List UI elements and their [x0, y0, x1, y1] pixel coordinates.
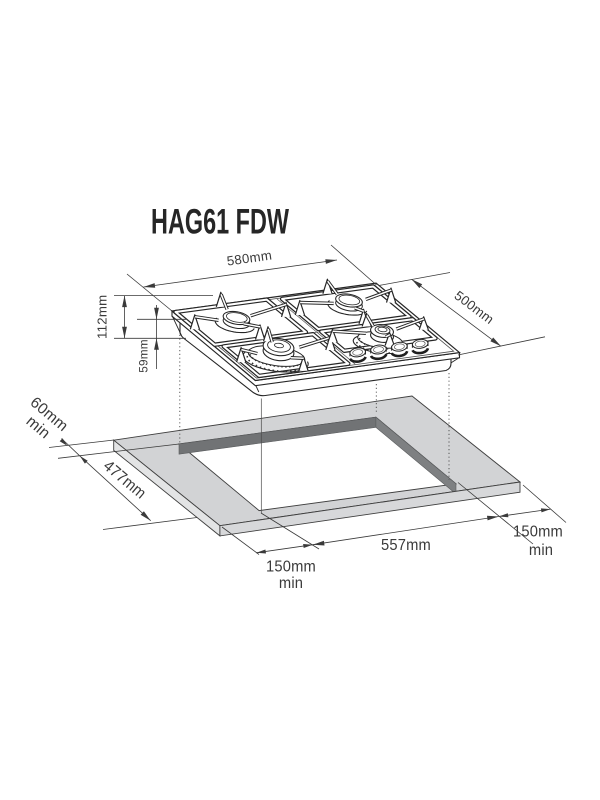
svg-text:112mm: 112mm — [95, 295, 110, 340]
svg-text:min: min — [529, 541, 553, 559]
svg-text:150mm: 150mm — [266, 558, 316, 576]
svg-text:150mm: 150mm — [513, 523, 563, 541]
svg-text:min: min — [279, 574, 303, 592]
svg-text:59mm: 59mm — [137, 339, 151, 373]
svg-text:HAG61 FDW: HAG61 FDW — [151, 203, 289, 242]
svg-text:557mm: 557mm — [381, 536, 431, 554]
